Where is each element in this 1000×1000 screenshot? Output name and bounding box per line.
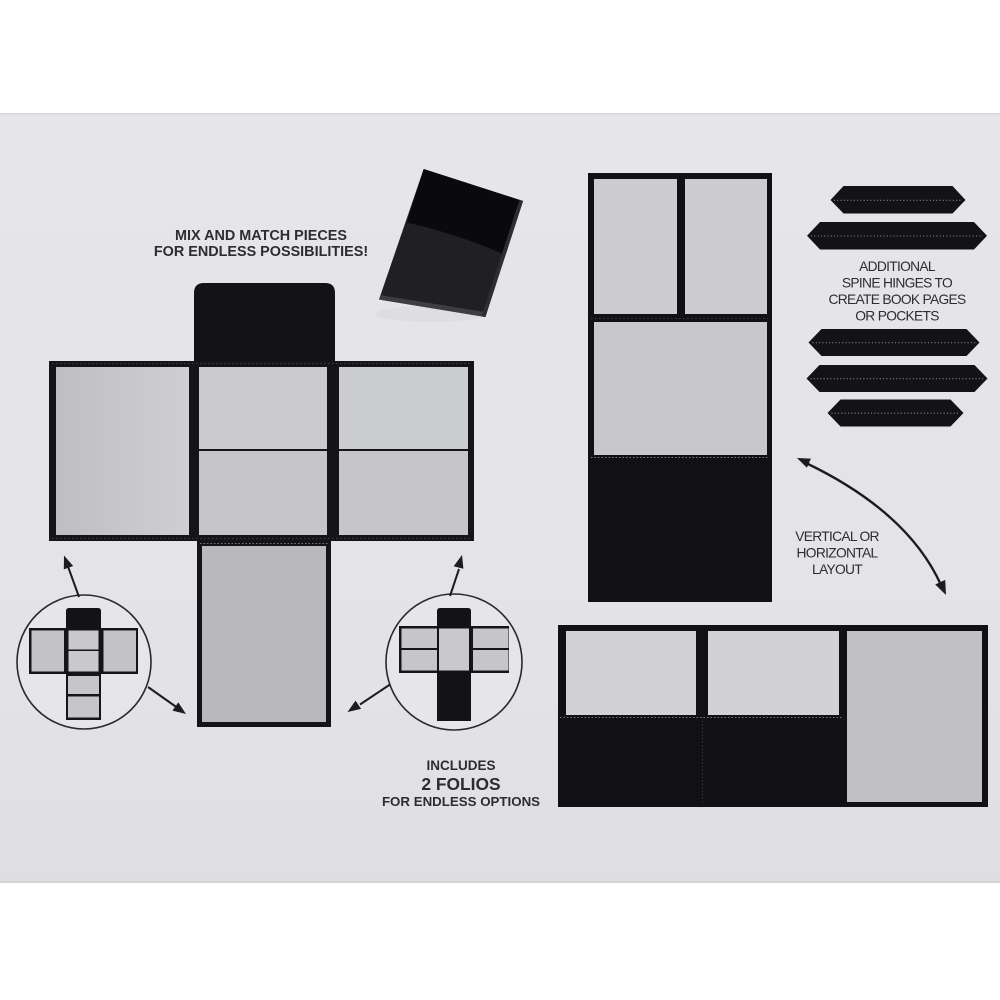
svg-text:VERTICAL OR: VERTICAL OR: [795, 529, 879, 544]
svg-text:INCLUDES: INCLUDES: [426, 758, 495, 773]
svg-text:SPINE HINGES TO: SPINE HINGES TO: [842, 276, 953, 291]
svg-text:MIX AND MATCH PIECES: MIX AND MATCH PIECES: [175, 228, 347, 244]
svg-text:HORIZONTAL: HORIZONTAL: [797, 546, 879, 561]
svg-text:LAYOUT: LAYOUT: [812, 562, 863, 577]
svg-text:ADDITIONAL: ADDITIONAL: [859, 259, 936, 274]
svg-text:FOR ENDLESS OPTIONS: FOR ENDLESS OPTIONS: [382, 794, 540, 809]
svg-text:CREATE BOOK PAGES: CREATE BOOK PAGES: [828, 292, 966, 307]
svg-text:2 FOLIOS: 2 FOLIOS: [421, 774, 500, 794]
svg-text:OR POCKETS: OR POCKETS: [855, 309, 939, 324]
svg-text:FOR ENDLESS POSSIBILITIES!: FOR ENDLESS POSSIBILITIES!: [154, 244, 368, 260]
